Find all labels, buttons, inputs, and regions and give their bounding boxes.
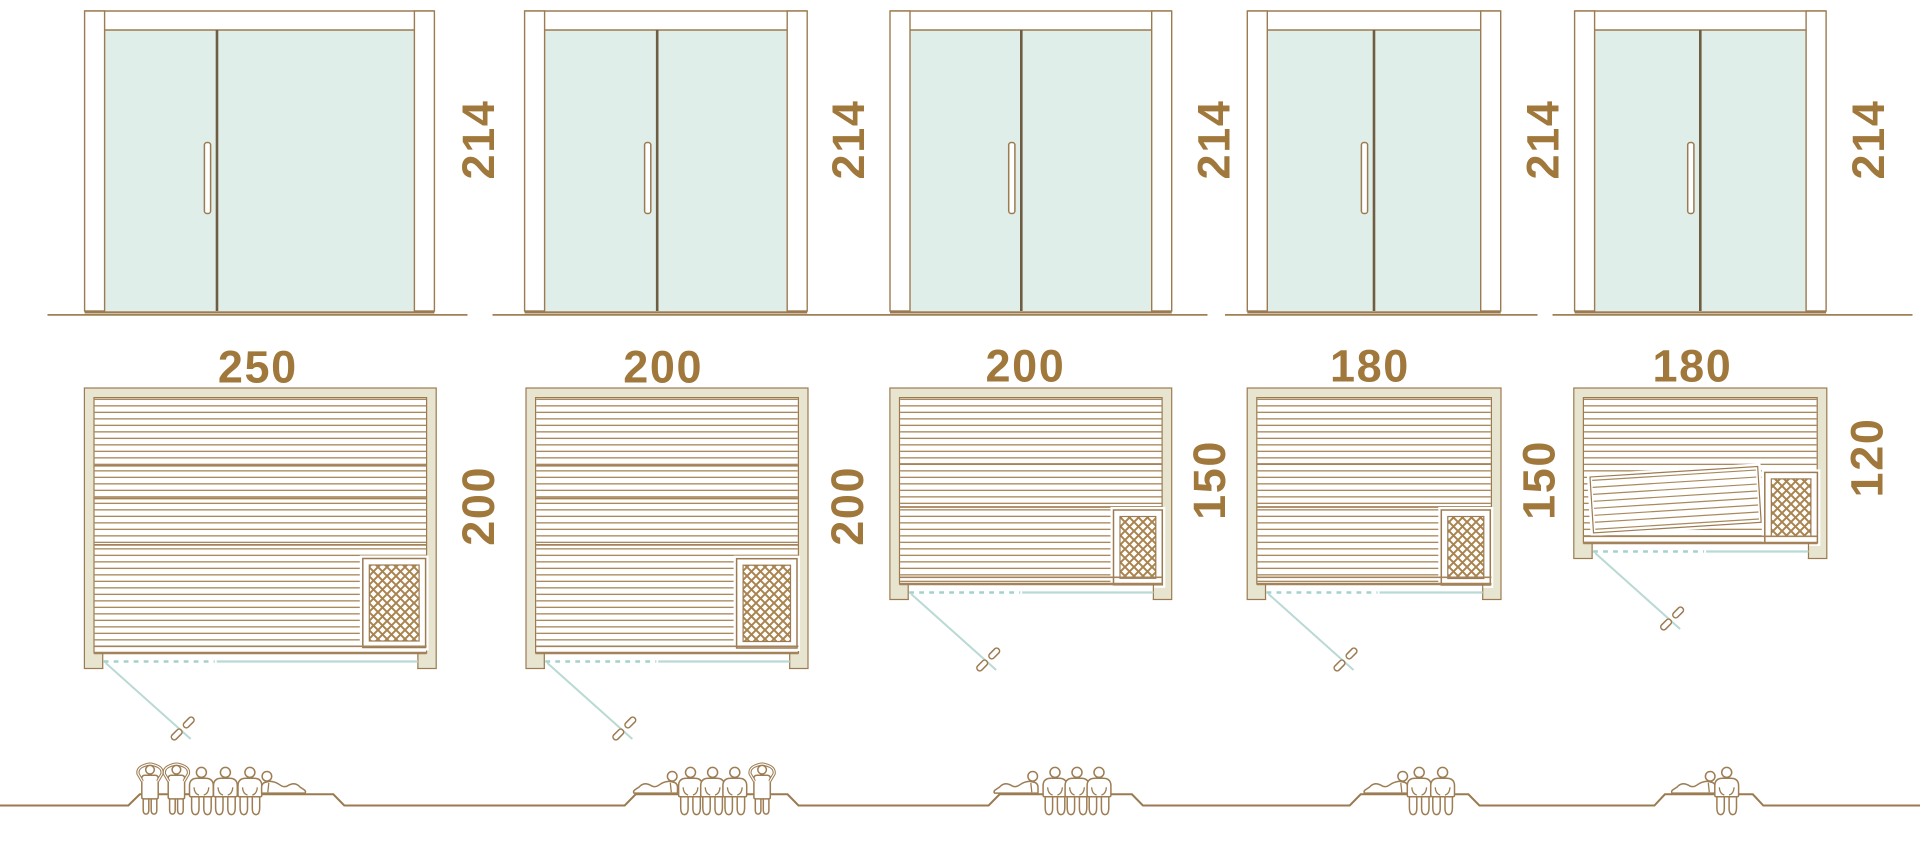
svg-text:214: 214 (453, 100, 504, 180)
svg-text:250: 250 (218, 342, 298, 393)
svg-text:214: 214 (1518, 100, 1569, 180)
svg-text:200: 200 (623, 342, 703, 393)
svg-text:214: 214 (1189, 100, 1240, 180)
svg-text:214: 214 (1843, 100, 1894, 180)
svg-text:200: 200 (822, 466, 873, 546)
svg-text:200: 200 (453, 466, 504, 546)
svg-text:214: 214 (823, 100, 874, 180)
svg-text:180: 180 (1330, 341, 1410, 392)
svg-text:120: 120 (1841, 418, 1892, 498)
svg-text:200: 200 (986, 341, 1066, 392)
svg-text:180: 180 (1652, 341, 1732, 392)
svg-text:150: 150 (1514, 440, 1565, 520)
svg-text:150: 150 (1184, 440, 1235, 520)
